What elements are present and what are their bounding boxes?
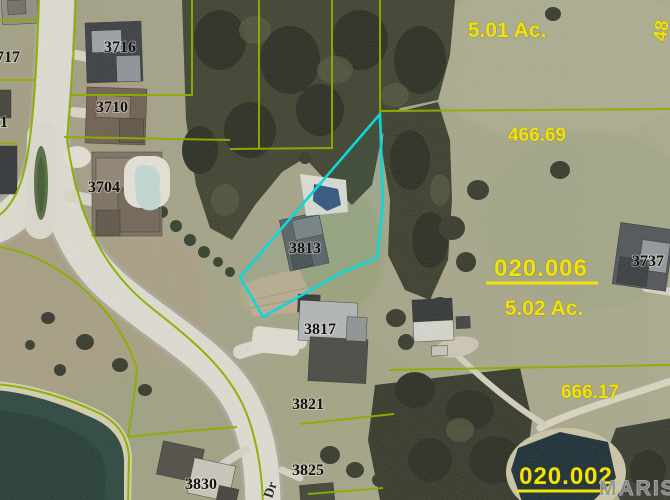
- house-number-3817: 3817: [304, 321, 336, 338]
- dimension-label-666: 666.17: [561, 382, 619, 403]
- aerial-parcel-map[interactable]: 5.01 Ac. 466.69 020.006 5.02 Ac. 666.17 …: [0, 0, 670, 500]
- house-number-3716: 3716: [104, 39, 136, 56]
- house-number-717: 717: [0, 49, 20, 66]
- map-canvas: 5.01 Ac. 466.69 020.006 5.02 Ac. 666.17 …: [0, 0, 670, 500]
- house-number-3821: 3821: [292, 396, 324, 413]
- acreage-label-501: 5.01 Ac.: [468, 19, 547, 42]
- house-number-3704: 3704: [88, 179, 120, 196]
- edge-partial-label: 48: [650, 19, 670, 43]
- house-number-3813: 3813: [289, 240, 321, 257]
- house-number-3825: 3825: [292, 462, 324, 479]
- parcel-id-020-006: 020.006: [494, 255, 588, 282]
- house-number-3710: 3710: [96, 99, 128, 116]
- dimension-label-466: 466.69: [508, 125, 566, 146]
- acreage-label-502: 5.02 Ac.: [505, 297, 584, 320]
- house-number-1: 1: [0, 114, 8, 131]
- maris-watermark: MARIS: [599, 477, 670, 500]
- house-number-3830: 3830: [185, 476, 217, 493]
- house-number-3737: 3737: [632, 253, 664, 270]
